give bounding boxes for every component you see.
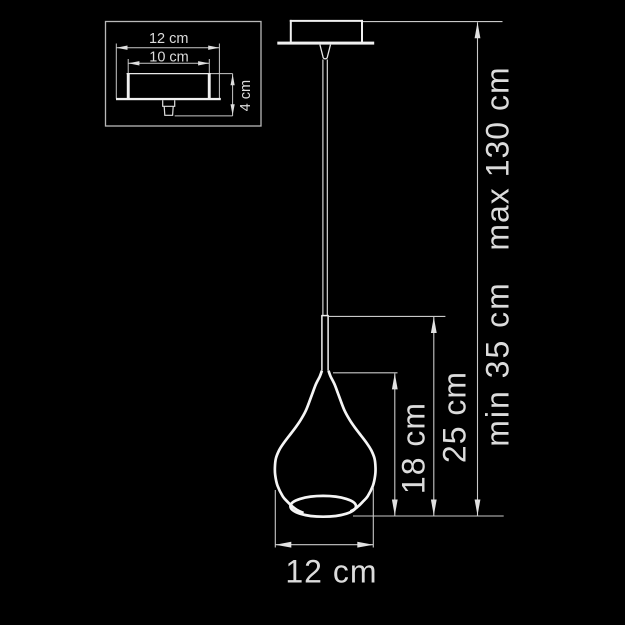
- svg-text:12 cm: 12 cm: [285, 554, 377, 590]
- svg-text:25 cm: 25 cm: [437, 371, 473, 463]
- svg-text:12 cm: 12 cm: [149, 31, 189, 47]
- svg-text:18 cm: 18 cm: [396, 402, 432, 494]
- svg-text:4 cm: 4 cm: [238, 80, 254, 111]
- svg-text:max 130 cm: max 130 cm: [480, 66, 516, 250]
- svg-text:min 35 cm: min 35 cm: [480, 281, 516, 447]
